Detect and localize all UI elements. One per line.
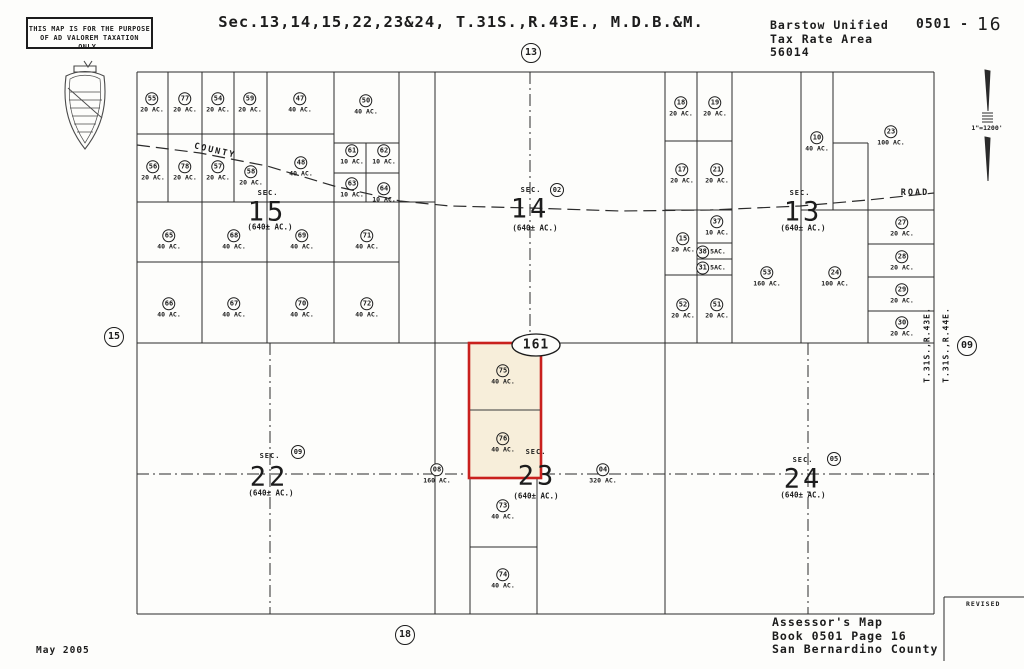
parcel-label: 53160 AC. [753, 261, 780, 287]
township-range-44e: T.31S.,R.44E. [942, 307, 951, 383]
assessor-map-page: THIS MAP IS FOR THE PURPOSE OF AD VALORE… [0, 0, 1024, 669]
parcel-acreage: 20 AC. [671, 246, 694, 253]
parcel-label: 2720 AC. [890, 211, 913, 237]
parcel-label: 5820 AC. [239, 160, 262, 186]
parcel-number: 64 [377, 182, 390, 195]
parcel-acreage: 40 AC. [290, 311, 313, 318]
parcel-number: 24 [829, 266, 842, 279]
parcel-acreage: 40 AC. [289, 170, 312, 177]
parcel-acreage: 40 AC. [805, 145, 828, 152]
parcel-number: 61 [345, 144, 358, 157]
assessor-line-1: Assessor's Map [772, 616, 938, 630]
parcel-number: 65 [162, 229, 175, 242]
parcel-label: 6540 AC. [157, 224, 180, 250]
parcel-number: 75 [496, 364, 509, 377]
parcel-acreage: 40 AC. [491, 513, 514, 520]
parcel-label: 5040 AC. [354, 89, 377, 115]
parcel-acreage: 100 AC. [877, 139, 904, 146]
parcel-acreage: 20 AC. [238, 106, 261, 113]
parcel-number: 27 [895, 216, 908, 229]
sec13-size: (640± AC.) [780, 224, 825, 233]
parcel-label: 7720 AC. [173, 87, 196, 113]
parcel-acreage: 160 AC. [423, 477, 450, 484]
parcel-acreage: 40 AC. [491, 582, 514, 589]
parcel-acreage: 5AC. [710, 249, 726, 256]
parcel-flag-number: 161 [523, 338, 549, 353]
book-page-prefix: 0501 - [916, 17, 969, 35]
sec15-number: 15 [248, 199, 287, 226]
parcel-number: 31 [696, 262, 709, 275]
parcel-label: 6940 AC. [290, 224, 313, 250]
parcel-label: 4740 AC. [288, 87, 311, 113]
parcel-number: 53 [761, 266, 774, 279]
sec14-number: 14 [511, 196, 550, 223]
parcel-acreage: 20 AC. [671, 312, 694, 319]
parcel-label: 6640 AC. [157, 292, 180, 318]
parcel-label: 315AC. [696, 262, 726, 275]
parcel-label: 1920 AC. [703, 91, 726, 117]
parcel-label: 6310 AC. [340, 172, 363, 198]
parcel-label: 04320 AC. [589, 458, 616, 484]
parcel-label: 7820 AC. [173, 155, 196, 181]
parcel-number: 78 [178, 160, 191, 173]
revised-label: REVISED [966, 600, 1000, 608]
parcel-acreage: 40 AC. [222, 311, 245, 318]
parcel-acreage: 5AC. [710, 265, 726, 272]
assessor-line-3: San Bernardino County [772, 643, 938, 657]
parcel-label: 6110 AC. [340, 139, 363, 165]
tax-rate-area-block: Barstow Unified Tax Rate Area 56014 [770, 19, 889, 60]
township-range-43e: T.31S.,R.43E. [923, 307, 932, 383]
parcel-number: 67 [227, 297, 240, 310]
tax-rate-area-label: Tax Rate Area [770, 33, 889, 47]
parcel-number: 51 [710, 298, 723, 311]
parcel-number: 08 [431, 463, 444, 476]
parcel-number: 17 [675, 163, 688, 176]
parcel-label: 24100 AC. [821, 261, 848, 287]
sec15-size: (640± AC.) [247, 223, 292, 232]
parcel-number: 57 [211, 160, 224, 173]
parcel-number: 50 [359, 94, 372, 107]
parcel-label: 5120 AC. [705, 293, 728, 319]
edge-ref-top: 13 [521, 43, 541, 63]
sec23-label: SEC. [526, 448, 547, 456]
parcel-label: 5920 AC. [238, 87, 261, 113]
parcel-acreage: 40 AC. [355, 243, 378, 250]
parcel-acreage: 20 AC. [173, 174, 196, 181]
page-number: 16 [977, 14, 1003, 35]
parcel-label: 7240 AC. [355, 292, 378, 318]
disclaimer-line-1: THIS MAP IS FOR THE PURPOSE [28, 25, 151, 34]
parcel-number: 47 [293, 92, 306, 105]
parcel-number: 76 [496, 432, 509, 445]
parcel-label: 5620 AC. [141, 155, 164, 181]
parcel-acreage: 100 AC. [821, 280, 848, 287]
parcel-label: 1520 AC. [671, 227, 694, 253]
sheet-number: 0501 - 16 [916, 17, 1003, 35]
parcel-number: 59 [243, 92, 256, 105]
parcel-acreage: 160 AC. [753, 280, 780, 287]
parcel-label: 5220 AC. [671, 293, 694, 319]
parcel-acreage: 20 AC. [890, 297, 913, 304]
sec14-ref-circle: 02 [550, 183, 564, 197]
parcel-number: 66 [162, 297, 175, 310]
parcel-label: 1820 AC. [669, 91, 692, 117]
parcel-number: 68 [227, 229, 240, 242]
parcel-label: 7140 AC. [355, 224, 378, 250]
sec24-size: (640± AC.) [780, 491, 825, 500]
parcel-acreage: 320 AC. [589, 477, 616, 484]
parcel-label-highlighted: 7640 AC. [491, 427, 514, 453]
map-title: Sec.13,14,15,22,23&24, T.31S.,R.43E., M.… [218, 13, 704, 31]
sec24-number: 24 [784, 466, 823, 493]
parcel-number: 77 [178, 92, 191, 105]
parcel-label: 6740 AC. [222, 292, 245, 318]
parcel-number: 55 [145, 92, 158, 105]
parcel-acreage: 10 AC. [705, 229, 728, 236]
parcel-number: 30 [895, 316, 908, 329]
parcel-acreage: 20 AC. [705, 177, 728, 184]
parcel-label: 6840 AC. [222, 224, 245, 250]
disclaimer-stamp: THIS MAP IS FOR THE PURPOSE OF AD VALORE… [26, 17, 153, 49]
parcel-label: 5720 AC. [206, 155, 229, 181]
parcel-number: 69 [295, 229, 308, 242]
parcel-acreage: 20 AC. [239, 179, 262, 186]
parcel-label: 7340 AC. [491, 494, 514, 520]
parcel-acreage: 40 AC. [290, 243, 313, 250]
parcel-number: 29 [895, 283, 908, 296]
parcel-acreage: 40 AC. [354, 108, 377, 115]
parcel-number: 28 [895, 250, 908, 263]
parcel-label: 385AC. [696, 246, 726, 259]
parcel-label: 6210 AC. [372, 139, 395, 165]
parcel-label: 1720 AC. [670, 158, 693, 184]
sec24-ref-circle: 05 [827, 452, 841, 466]
edge-ref-left: 15 [104, 327, 124, 347]
parcel-number: 21 [710, 163, 723, 176]
parcel-label: 2120 AC. [705, 158, 728, 184]
parcel-number: 54 [211, 92, 224, 105]
parcel-number: 15 [676, 232, 689, 245]
parcel-number: 10 [810, 131, 823, 144]
parcel-acreage: 40 AC. [222, 243, 245, 250]
district-name: Barstow Unified [770, 19, 889, 33]
parcel-number: 63 [345, 177, 358, 190]
parcel-label: 7440 AC. [491, 563, 514, 589]
parcel-number: 23 [885, 125, 898, 138]
parcel-number: 38 [696, 246, 709, 259]
parcel-number: 72 [360, 297, 373, 310]
parcel-number: 62 [377, 144, 390, 157]
parcel-acreage: 40 AC. [491, 446, 514, 453]
parcel-acreage: 20 AC. [890, 264, 913, 271]
parcel-acreage: 40 AC. [491, 378, 514, 385]
parcel-acreage: 20 AC. [140, 106, 163, 113]
parcel-acreage: 20 AC. [890, 330, 913, 337]
sec22-number: 22 [250, 464, 289, 491]
parcel-acreage: 20 AC. [705, 312, 728, 319]
assessor-block: Assessor's Map Book 0501 Page 16 San Ber… [772, 616, 938, 657]
sec22-size: (640± AC.) [248, 489, 293, 498]
parcel-number: 04 [597, 463, 610, 476]
parcel-number: 18 [674, 96, 687, 109]
parcel-acreage: 20 AC. [173, 106, 196, 113]
county-seal-icon [65, 61, 105, 149]
map-date: May 2005 [36, 645, 90, 656]
parcel-acreage: 20 AC. [206, 174, 229, 181]
sec22-ref-circle: 09 [291, 445, 305, 459]
parcel-acreage: 40 AC. [157, 311, 180, 318]
parcel-label: 4840 AC. [289, 151, 312, 177]
scale-label: 1"=1200' [971, 124, 1002, 132]
parcel-acreage: 20 AC. [670, 177, 693, 184]
parcel-number: 56 [146, 160, 159, 173]
parcel-acreage: 10 AC. [340, 191, 363, 198]
parcel-label: 5420 AC. [206, 87, 229, 113]
parcel-number: 37 [710, 215, 723, 228]
sec14-size: (640± AC.) [512, 224, 557, 233]
parcel-label: 08160 AC. [423, 458, 450, 484]
parcel-acreage: 10 AC. [340, 158, 363, 165]
parcel-acreage: 20 AC. [141, 174, 164, 181]
parcel-label: 23100 AC. [877, 120, 904, 146]
parcel-number: 70 [295, 297, 308, 310]
sec22-label: SEC. [260, 452, 281, 460]
parcel-label-highlighted: 7540 AC. [491, 359, 514, 385]
edge-ref-bottom: 18 [395, 625, 415, 645]
parcel-number: 19 [708, 96, 721, 109]
parcel-number: 58 [244, 165, 257, 178]
sec23-size: (640± AC.) [513, 492, 558, 501]
parcel-number: 71 [360, 229, 373, 242]
disclaimer-line-2: OF AD VALOREM TAXATION ONLY. [28, 34, 151, 52]
tax-rate-area-number: 56014 [770, 46, 889, 60]
parcel-acreage: 20 AC. [669, 110, 692, 117]
parcel-label: 3710 AC. [705, 210, 728, 236]
parcel-acreage: 40 AC. [355, 311, 378, 318]
parcel-number: 52 [676, 298, 689, 311]
parcel-acreage: 20 AC. [890, 230, 913, 237]
parcel-acreage: 20 AC. [703, 110, 726, 117]
parcel-acreage: 40 AC. [157, 243, 180, 250]
parcel-number: 73 [496, 499, 509, 512]
parcel-acreage: 40 AC. [288, 106, 311, 113]
parcel-acreage: 10 AC. [372, 158, 395, 165]
sec23-number: 23 [518, 463, 557, 490]
sec13-number: 13 [784, 199, 823, 226]
parcel-label: 7040 AC. [290, 292, 313, 318]
edge-ref-right: 09 [957, 336, 977, 356]
assessor-line-2: Book 0501 Page 16 [772, 630, 938, 644]
parcel-label: 3020 AC. [890, 311, 913, 337]
parcel-label: 2820 AC. [890, 245, 913, 271]
parcel-label: 6410 AC. [372, 177, 395, 203]
parcel-number: 48 [294, 156, 307, 169]
parcel-number: 74 [496, 568, 509, 581]
parcel-acreage: 10 AC. [372, 196, 395, 203]
parcel-label: 1040 AC. [805, 126, 828, 152]
parcel-label: 5520 AC. [140, 87, 163, 113]
road-label: ROAD [901, 188, 929, 198]
parcel-acreage: 20 AC. [206, 106, 229, 113]
parcel-label: 2920 AC. [890, 278, 913, 304]
